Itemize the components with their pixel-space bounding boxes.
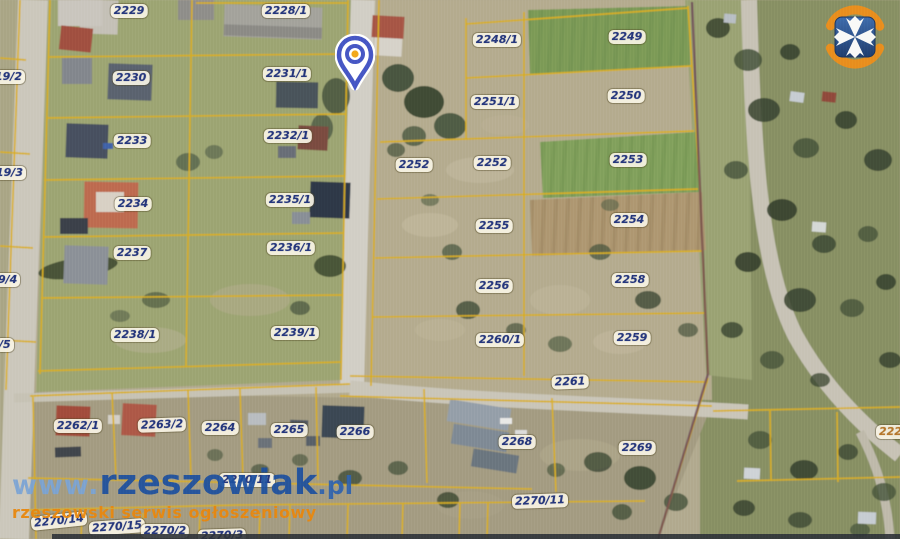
parcel-label: 2233 xyxy=(114,134,151,148)
parcel-label: 2263/2 xyxy=(138,417,187,433)
parcel-label: 2260/1 xyxy=(476,333,524,347)
parcel-label: 2262/1 xyxy=(54,419,102,433)
edge-parcel-label: 9/4 xyxy=(0,273,20,287)
parcel-label: 2237 xyxy=(114,246,151,260)
parcel-label: 2252 xyxy=(474,156,511,170)
crest-logo-icon xyxy=(822,4,888,70)
parcel-label: 2256 xyxy=(476,279,513,293)
parcel-label: 2248/1 xyxy=(473,33,521,47)
parcel-label: 2229 xyxy=(111,4,148,18)
edge-parcel-label: /5 xyxy=(0,338,14,352)
parcel-label: 2259 xyxy=(614,331,651,345)
map-viewport: 22292228/12248/1224922302231/12251/12250… xyxy=(0,0,900,539)
parcel-label: 2270/14 xyxy=(30,511,87,531)
parcel-label: 2239/1 xyxy=(271,326,319,340)
parcel-labels-layer: 22292228/12248/1224922302231/12251/12250… xyxy=(0,0,900,539)
parcel-label: 2235/1 xyxy=(266,193,314,207)
parcel-label: 2268 xyxy=(499,435,536,449)
rzeszow-crest-logo xyxy=(822,4,888,70)
parcel-label: 2252 xyxy=(396,158,433,172)
parcel-label: 2255 xyxy=(476,219,513,233)
parcel-label: 2265 xyxy=(271,423,308,437)
parcel-label: 2249 xyxy=(609,30,646,44)
parcel-label: 2258 xyxy=(612,273,649,287)
parcel-label: 2254 xyxy=(611,213,648,227)
parcel-label: 2234 xyxy=(115,197,152,211)
edge-parcel-label: 19/2 xyxy=(0,70,25,84)
parcel-label: 2251/1 xyxy=(471,95,519,109)
parcel-label: 2264 xyxy=(202,421,239,435)
edge-parcel-label: 19/3 xyxy=(0,166,26,180)
parcel-label: 2230 xyxy=(113,71,150,85)
parcel-label: 2269 xyxy=(619,441,656,455)
parcel-label: 2270/11 xyxy=(512,493,568,509)
parcel-label: 2231/1 xyxy=(263,67,311,81)
location-pin-icon xyxy=(335,34,375,92)
edge-parcel-label: 222 xyxy=(876,425,900,439)
parcel-label: 2270/11 xyxy=(219,473,275,487)
screen-edge-strip xyxy=(52,534,900,539)
parcel-label: 2266 xyxy=(337,425,374,439)
parcel-label: 2238/1 xyxy=(111,328,159,342)
parcel-label: 2236/1 xyxy=(267,241,315,255)
location-pin-marker[interactable] xyxy=(335,34,375,92)
parcel-label: 2228/1 xyxy=(262,4,310,18)
parcel-label: 2261 xyxy=(551,374,588,389)
parcel-label: 2250 xyxy=(608,89,645,103)
parcel-label: 2253 xyxy=(610,153,647,167)
parcel-label: 2232/1 xyxy=(264,129,312,143)
